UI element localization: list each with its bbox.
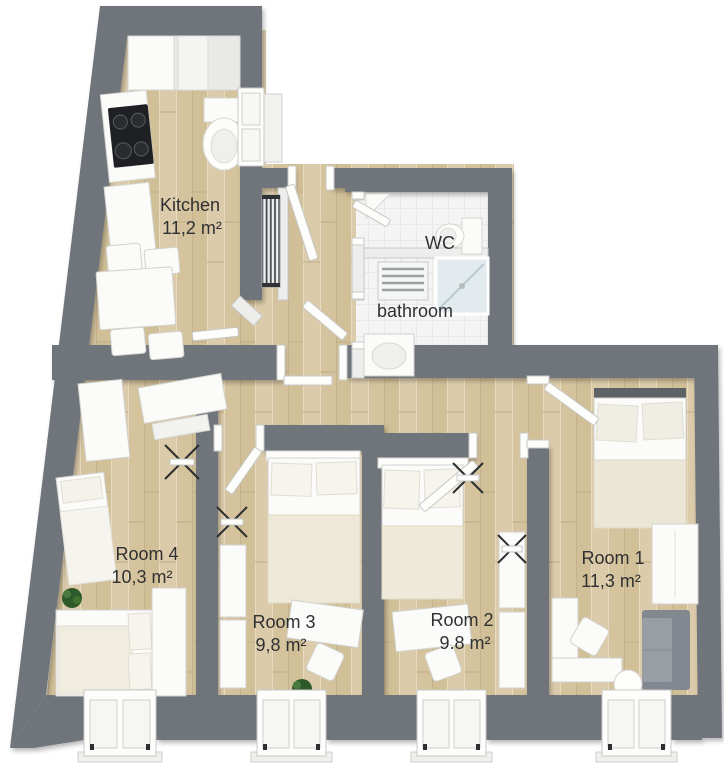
- wc-door-frame-top: [352, 192, 364, 199]
- room2-name: Room 2: [430, 610, 493, 630]
- room1-door-frame-top: [527, 376, 549, 384]
- wardrobe: [499, 612, 525, 688]
- wardrobe: [220, 620, 246, 688]
- window-room2: [411, 690, 492, 762]
- entry-door-frame-right: [326, 166, 334, 190]
- plant-leaf: [73, 596, 81, 604]
- hall-passage-frame-right: [339, 345, 347, 380]
- window-room4: [78, 690, 162, 762]
- hall-passage-frame-left: [277, 345, 285, 380]
- wardrobe: [78, 379, 130, 461]
- floorplan-svg: Kitchen 11,2 m² WC bathroom: [0, 0, 724, 768]
- pillow: [384, 470, 420, 509]
- washbasin: [364, 334, 414, 376]
- bedside-cabinet: [152, 588, 186, 696]
- wc-name: WC: [425, 233, 455, 253]
- kitchen-cabinet-2: [178, 36, 208, 90]
- desk-front: [552, 658, 622, 682]
- wall-bottom-seg3: [486, 695, 602, 740]
- room3-door-frame-right: [256, 425, 264, 451]
- radiator-cap-bottom: [262, 283, 280, 287]
- wall-bottom-seg2: [326, 695, 417, 740]
- room4-name: Room 4: [115, 544, 178, 564]
- room3-area: 9,8 m²: [255, 635, 306, 655]
- plant-leaf: [293, 681, 301, 689]
- room1-door-frame-bottom: [527, 440, 549, 448]
- window-room3: [251, 690, 332, 762]
- chair: [106, 243, 142, 272]
- kitchen-upper-cabinet: [128, 36, 174, 90]
- pillow: [596, 404, 638, 442]
- room2-area: 9.8 m²: [439, 633, 490, 653]
- pillow: [316, 462, 357, 495]
- wc-door-frame-bottom: [352, 238, 364, 245]
- towel-radiator: [378, 262, 428, 300]
- sofa: [642, 610, 690, 690]
- chair: [110, 327, 146, 356]
- hall-passage-threshold: [284, 376, 332, 385]
- double-bed: [268, 458, 360, 603]
- wall-kitchen-hall-stub: [240, 258, 262, 300]
- bathroom-door-frame-top: [352, 292, 364, 299]
- chair: [148, 331, 184, 360]
- wall-wc-left-cap-b: [352, 240, 364, 300]
- floorplan-canvas: Kitchen 11,2 m² WC bathroom: [0, 0, 724, 768]
- pillow: [642, 402, 684, 440]
- room1-name: Room 1: [581, 548, 644, 568]
- wall-wc-top: [345, 168, 512, 192]
- bathroom-door-frame-bottom: [352, 342, 364, 349]
- wall-bottom-seg4: [671, 695, 702, 740]
- room2-door-frame-left: [469, 433, 477, 458]
- radiator-cap-top: [262, 195, 280, 199]
- wall-room2-top: [362, 433, 475, 458]
- kitchen-area: 11,2 m²: [162, 218, 222, 238]
- room4-area: 10,3 m²: [111, 567, 172, 587]
- cooktop: [108, 104, 154, 168]
- wardrobe: [499, 532, 525, 608]
- room3-name: Room 3: [252, 612, 315, 632]
- wall-room3-top: [262, 425, 362, 451]
- pillow: [128, 613, 152, 650]
- wall-divider-room2-room1: [527, 445, 549, 700]
- room1-area: 11,3 m²: [581, 571, 641, 591]
- wardrobe: [220, 545, 246, 617]
- wall-bottom-seg1: [156, 695, 257, 740]
- window-room1: [596, 690, 677, 762]
- plant-leaf: [63, 590, 71, 598]
- double-bed: [594, 388, 686, 528]
- room3-door-frame-left: [214, 425, 222, 451]
- pillow: [271, 463, 312, 496]
- dining-table: [96, 267, 176, 330]
- kitchen-window: [238, 88, 282, 166]
- kitchen-name: Kitchen: [160, 195, 220, 215]
- wall-top-kitchen: [100, 6, 262, 36]
- bathroom-name: bathroom: [377, 301, 453, 321]
- pillow: [128, 653, 152, 690]
- wall-kitchen-right-upper: [240, 36, 262, 90]
- double-bed: [56, 610, 152, 696]
- radiator: [262, 195, 280, 287]
